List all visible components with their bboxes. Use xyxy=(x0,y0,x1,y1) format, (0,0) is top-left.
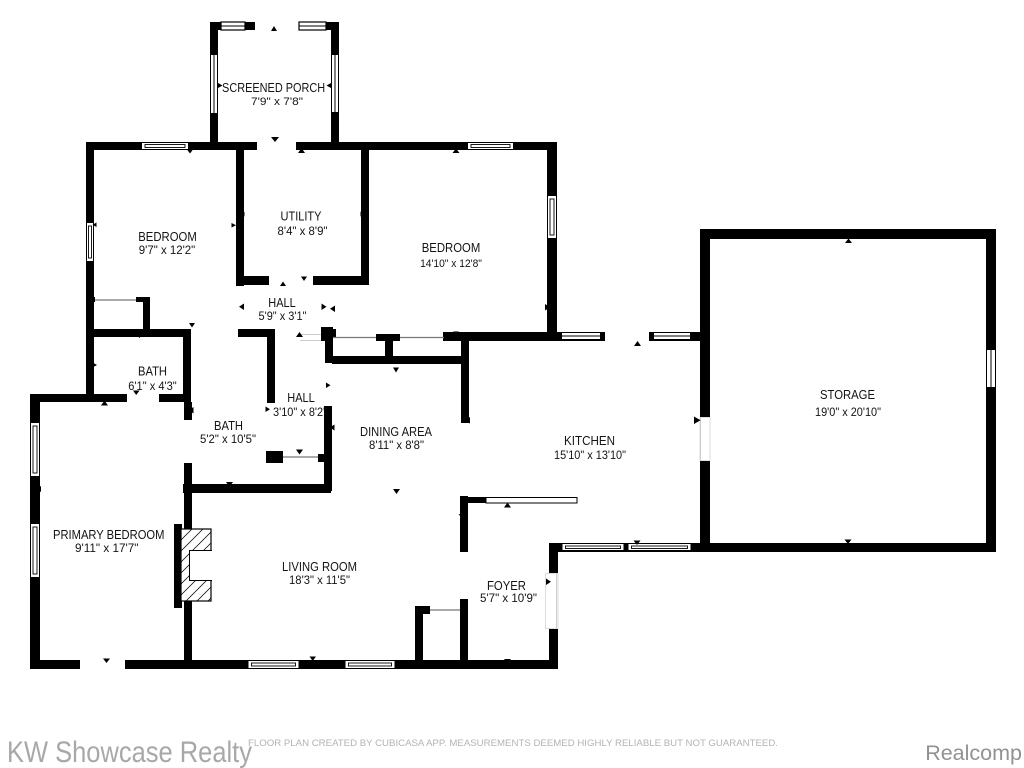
svg-text:3'10" x 8'2": 3'10" x 8'2" xyxy=(273,407,327,419)
svg-text:LIVING ROOM: LIVING ROOM xyxy=(282,559,357,574)
svg-text:5'2" x 10'5": 5'2" x 10'5" xyxy=(200,434,256,446)
svg-text:BEDROOM: BEDROOM xyxy=(138,229,197,244)
svg-text:KW Showcase Realty: KW Showcase Realty xyxy=(7,736,252,768)
svg-text:19'0" x 20'10": 19'0" x 20'10" xyxy=(815,407,881,419)
svg-text:STORAGE: STORAGE xyxy=(820,387,875,402)
svg-text:8'4" x 8'9": 8'4" x 8'9" xyxy=(278,226,328,238)
svg-text:HALL: HALL xyxy=(287,390,315,405)
svg-text:15'10" x 13'10": 15'10" x 13'10" xyxy=(554,450,626,462)
svg-text:UTILITY: UTILITY xyxy=(281,209,322,224)
svg-text:Realcomp: Realcomp xyxy=(925,741,1022,765)
svg-text:DINING AREA: DINING AREA xyxy=(360,424,433,439)
svg-text:8'11" x 8'8": 8'11" x 8'8" xyxy=(369,440,424,452)
svg-text:5'9" x 3'1": 5'9" x 3'1" xyxy=(259,311,307,323)
svg-text:FLOOR PLAN CREATED BY CUBICASA: FLOOR PLAN CREATED BY CUBICASA APP. MEAS… xyxy=(248,738,778,749)
svg-text:KITCHEN: KITCHEN xyxy=(564,433,615,448)
svg-text:PRIMARY BEDROOM: PRIMARY BEDROOM xyxy=(53,527,164,542)
svg-text:BATH: BATH xyxy=(214,418,243,433)
svg-text:BATH: BATH xyxy=(138,364,167,379)
svg-text:5'7" x 10'9": 5'7" x 10'9" xyxy=(480,593,537,605)
svg-text:14'10" x 12'8": 14'10" x 12'8" xyxy=(420,258,482,271)
svg-text:9'11" x 17'7": 9'11" x 17'7" xyxy=(75,542,138,555)
svg-text:7'9" x 7'8": 7'9" x 7'8" xyxy=(251,95,303,108)
svg-text:FOYER: FOYER xyxy=(487,578,526,593)
svg-text:9'7" x 12'2": 9'7" x 12'2" xyxy=(139,245,195,257)
svg-text:BEDROOM: BEDROOM xyxy=(422,240,481,255)
svg-text:6'1" x 4'3": 6'1" x 4'3" xyxy=(128,381,177,393)
svg-text:SCREENED PORCH: SCREENED PORCH xyxy=(222,80,325,95)
svg-text:HALL: HALL xyxy=(268,295,296,310)
svg-text:18'3" x 11'5": 18'3" x 11'5" xyxy=(289,575,350,587)
